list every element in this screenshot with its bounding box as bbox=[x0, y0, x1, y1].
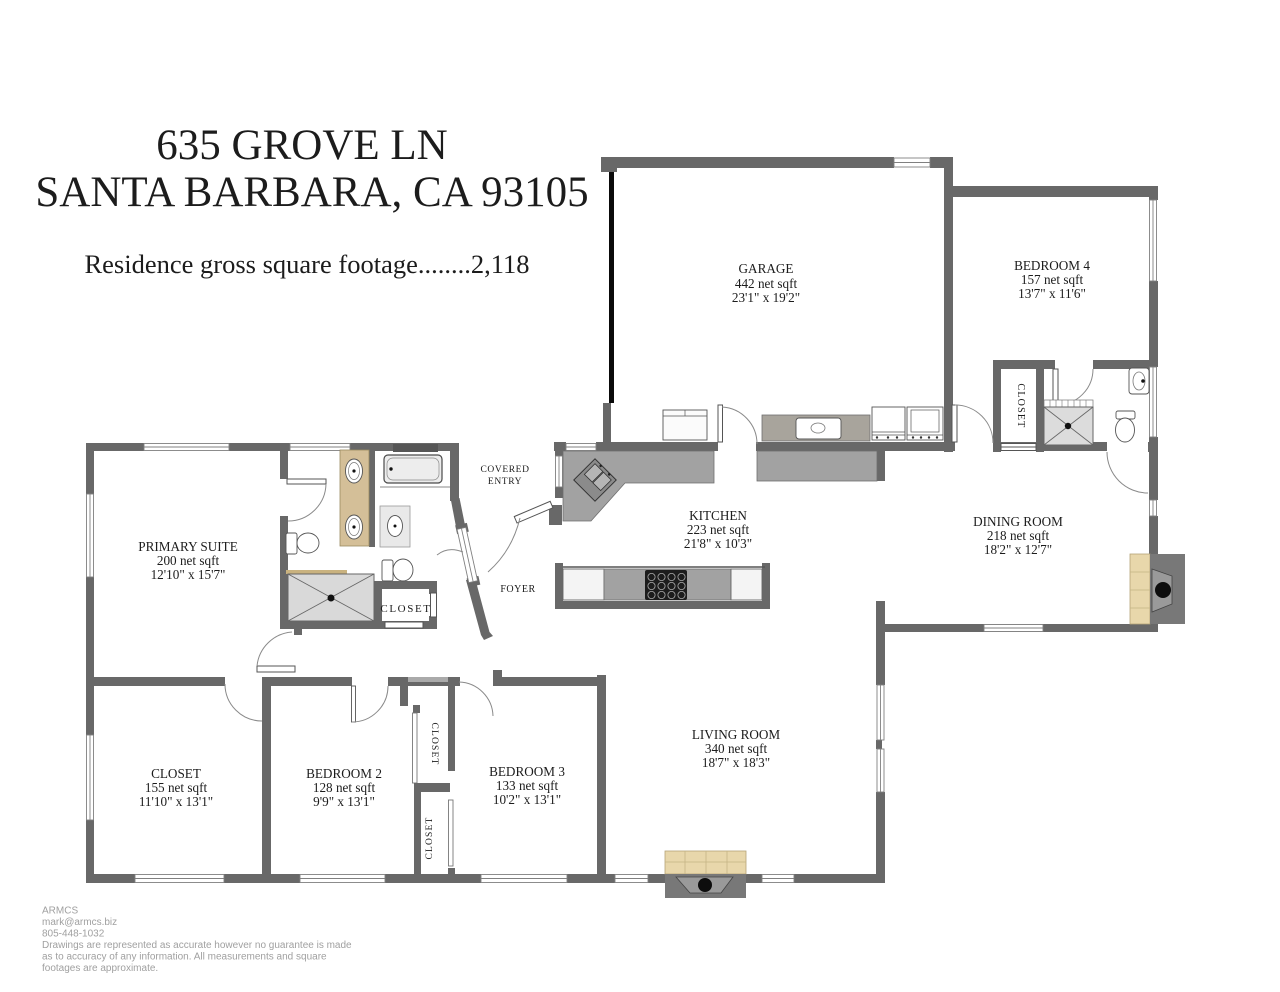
svg-text:Drawings are represented as ac: Drawings are represented as accurate how… bbox=[42, 940, 352, 951]
svg-text:635 GROVE LN: 635 GROVE LN bbox=[156, 122, 447, 169]
svg-text:COVERED: COVERED bbox=[480, 465, 529, 475]
svg-text:CLOSET: CLOSET bbox=[151, 766, 201, 781]
svg-text:Residence gross square footage: Residence gross square footage........2,… bbox=[85, 249, 530, 279]
svg-text:BEDROOM 2: BEDROOM 2 bbox=[306, 766, 382, 781]
svg-text:CLOSET: CLOSET bbox=[380, 603, 431, 615]
svg-text:ARMCS: ARMCS bbox=[42, 906, 78, 917]
svg-text:21'8" x 10'3": 21'8" x 10'3" bbox=[684, 536, 752, 551]
svg-text:mark@armcs.biz: mark@armcs.biz bbox=[42, 917, 117, 928]
svg-text:157 net sqft: 157 net sqft bbox=[1021, 272, 1084, 287]
svg-text:200 net sqft: 200 net sqft bbox=[157, 553, 220, 568]
svg-text:18'7" x 18'3": 18'7" x 18'3" bbox=[702, 755, 770, 770]
svg-text:223 net sqft: 223 net sqft bbox=[687, 522, 750, 537]
svg-text:ENTRY: ENTRY bbox=[488, 477, 522, 487]
svg-text:18'2" x 12'7": 18'2" x 12'7" bbox=[984, 542, 1052, 557]
svg-text:KITCHEN: KITCHEN bbox=[689, 508, 747, 523]
svg-text:218 net sqft: 218 net sqft bbox=[987, 528, 1050, 543]
svg-text:LIVING ROOM: LIVING ROOM bbox=[692, 727, 781, 742]
svg-text:9'9" x 13'1": 9'9" x 13'1" bbox=[313, 794, 375, 809]
svg-text:340 net sqft: 340 net sqft bbox=[705, 741, 768, 756]
svg-text:GARAGE: GARAGE bbox=[739, 261, 794, 276]
svg-text:11'10" x 13'1": 11'10" x 13'1" bbox=[139, 794, 213, 809]
svg-text:23'1" x 19'2": 23'1" x 19'2" bbox=[732, 290, 800, 305]
svg-text:footages are approximate.: footages are approximate. bbox=[42, 963, 158, 974]
svg-text:CLOSET: CLOSET bbox=[425, 816, 435, 859]
svg-text:12'10" x 15'7": 12'10" x 15'7" bbox=[151, 567, 226, 582]
svg-text:SANTA BARBARA, CA 93105: SANTA BARBARA, CA 93105 bbox=[35, 169, 588, 216]
svg-text:155 net sqft: 155 net sqft bbox=[145, 780, 208, 795]
svg-text:CLOSET: CLOSET bbox=[1015, 384, 1026, 429]
svg-text:BEDROOM 4: BEDROOM 4 bbox=[1014, 258, 1090, 273]
svg-text:PRIMARY SUITE: PRIMARY SUITE bbox=[138, 539, 238, 554]
svg-text:CLOSET: CLOSET bbox=[429, 722, 439, 765]
svg-text:442 net sqft: 442 net sqft bbox=[735, 276, 798, 291]
svg-text:133 net sqft: 133 net sqft bbox=[496, 778, 559, 793]
svg-text:BEDROOM 3: BEDROOM 3 bbox=[489, 764, 565, 779]
svg-text:805-448-1032: 805-448-1032 bbox=[42, 929, 105, 940]
svg-text:as to accuracy of any informat: as to accuracy of any information. All m… bbox=[42, 952, 327, 963]
svg-text:10'2" x 13'1": 10'2" x 13'1" bbox=[493, 792, 561, 807]
svg-text:128 net sqft: 128 net sqft bbox=[313, 780, 376, 795]
svg-text:13'7" x 11'6": 13'7" x 11'6" bbox=[1018, 286, 1086, 301]
svg-text:DINING ROOM: DINING ROOM bbox=[973, 514, 1063, 529]
svg-text:FOYER: FOYER bbox=[500, 584, 535, 595]
